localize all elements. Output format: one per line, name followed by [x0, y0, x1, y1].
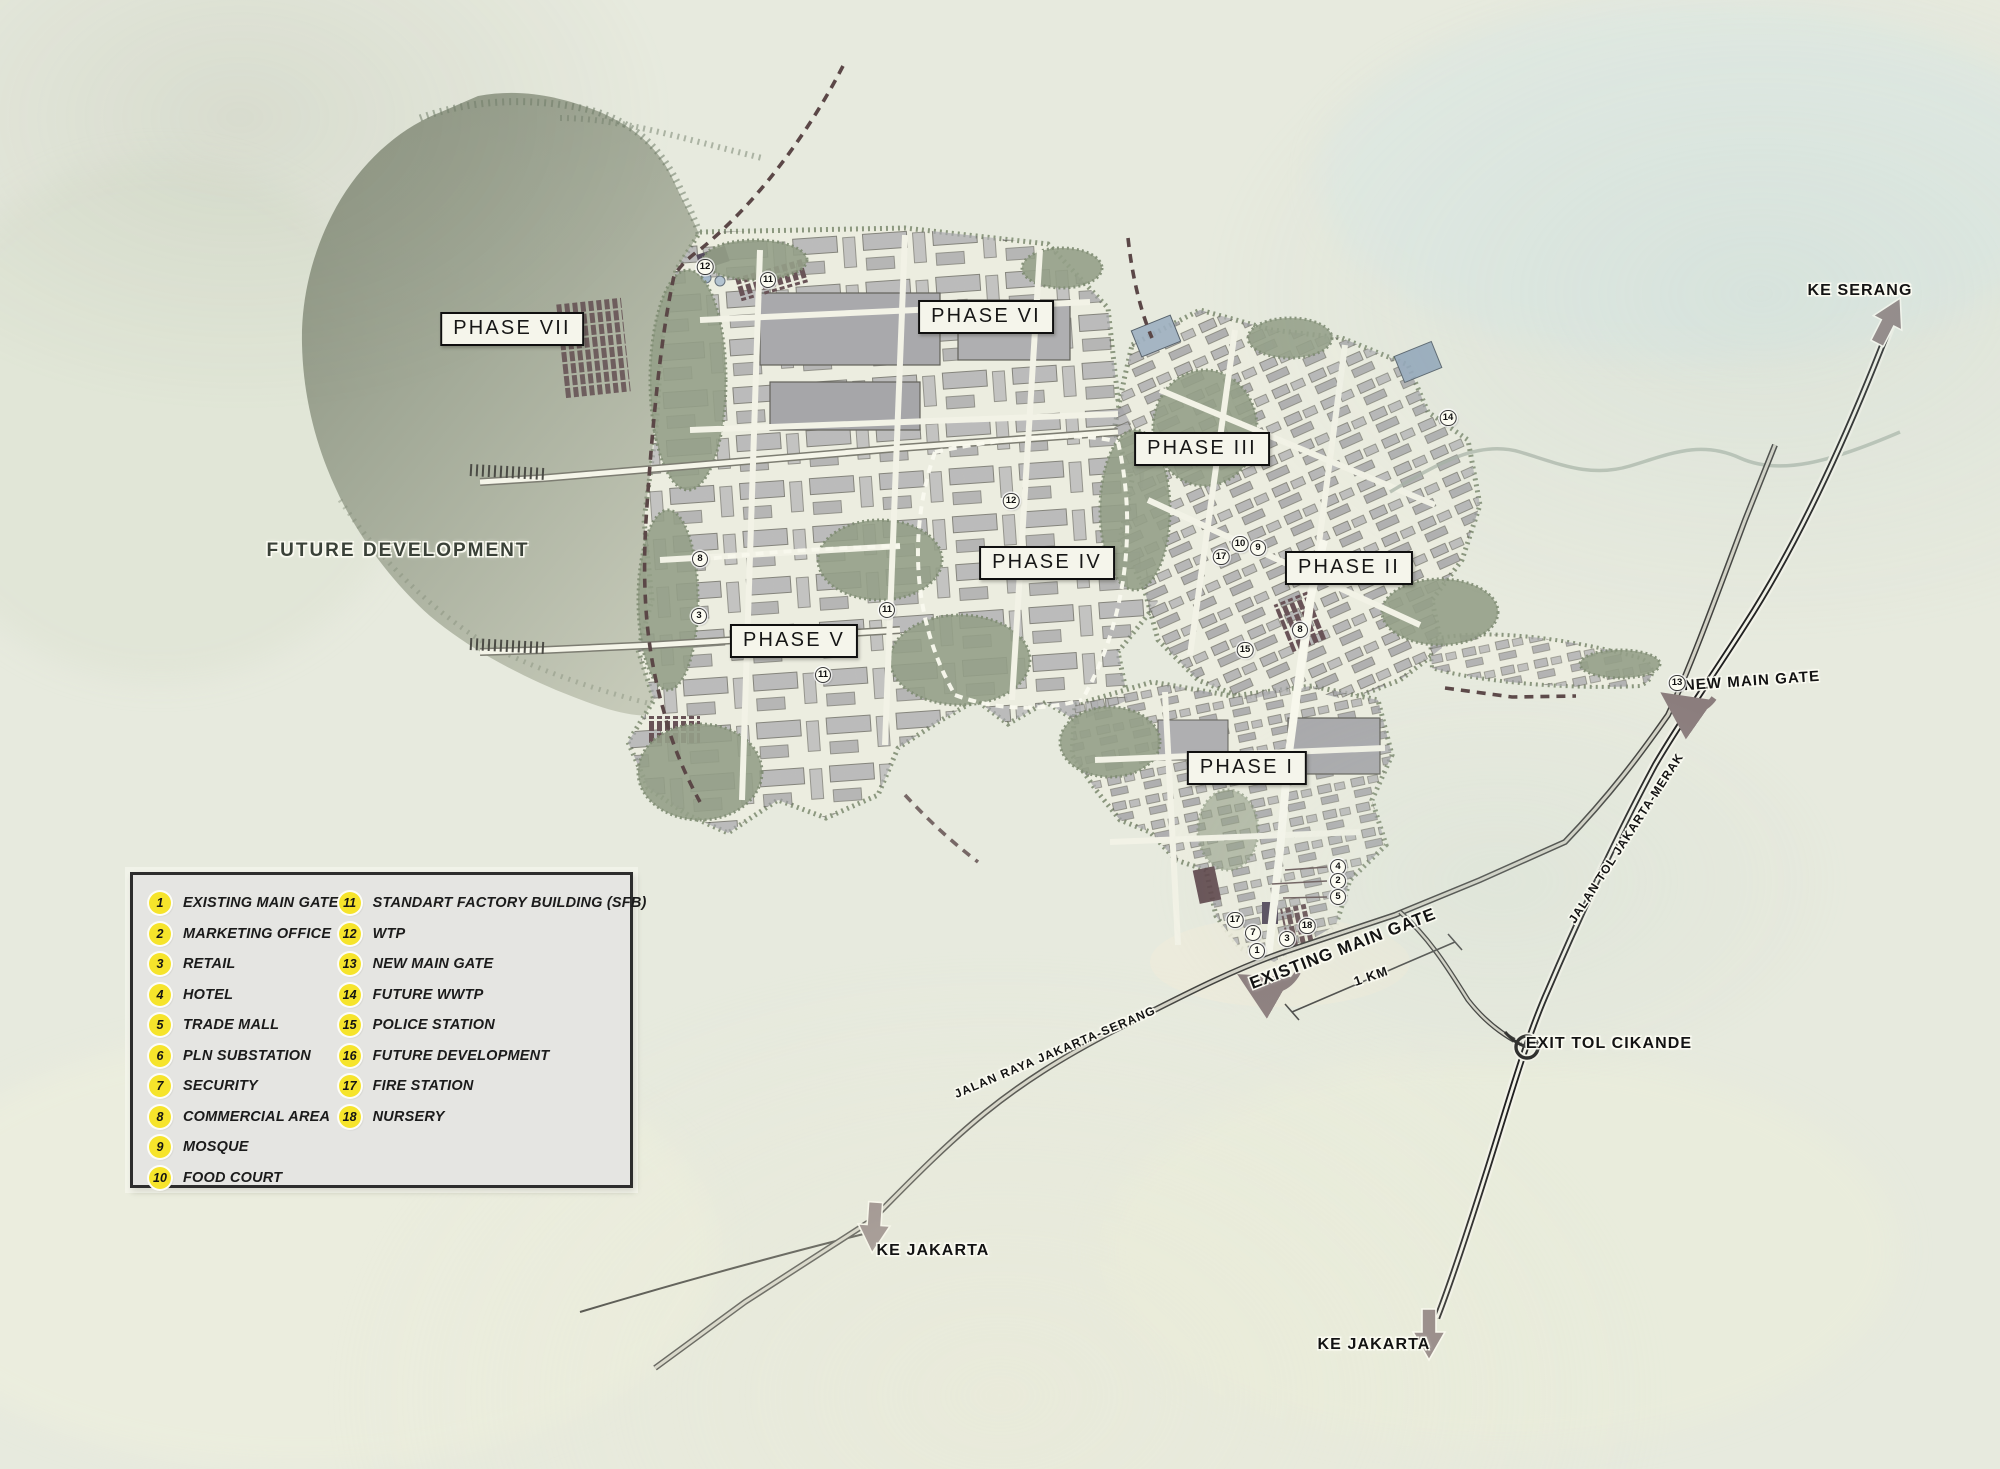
- legend-item-label: STANDART FACTORY BUILDING (SFB): [373, 895, 647, 911]
- phase-label-phase-vii: PHASE VII: [440, 312, 584, 346]
- terrain-washes: [0, 0, 2000, 1469]
- legend-item: 13NEW MAIN GATE: [339, 953, 647, 975]
- legend-item-label: EXISTING MAIN GATE: [183, 895, 339, 911]
- phase-label-phase-iii: PHASE III: [1134, 432, 1270, 466]
- legend-panel: 1EXISTING MAIN GATE2MARKETING OFFICE3RET…: [130, 872, 633, 1188]
- map-marker-17: 17: [1213, 549, 1230, 565]
- legend-item-label: TRADE MALL: [183, 1017, 279, 1033]
- phase-label-phase-vi: PHASE VI: [918, 300, 1054, 334]
- legend-number-badge: 4: [149, 984, 171, 1006]
- map-marker-8: 8: [1292, 622, 1308, 638]
- legend-number-badge: 9: [149, 1136, 171, 1158]
- legend-item-label: PLN SUBSTATION: [183, 1048, 311, 1064]
- legend-number-badge: 6: [149, 1045, 171, 1067]
- map-marker-7: 7: [1245, 925, 1261, 941]
- map-marker-1: 1: [1249, 943, 1265, 959]
- legend-number-badge: 18: [339, 1106, 361, 1128]
- map-marker-8: 8: [692, 551, 708, 567]
- legend-item-label: FUTURE WWTP: [373, 987, 484, 1003]
- map-marker-10: 10: [1232, 536, 1249, 552]
- legend-item: 7SECURITY: [149, 1075, 339, 1097]
- legend-item: 16FUTURE DEVELOPMENT: [339, 1045, 647, 1067]
- map-marker-17: 17: [1227, 912, 1244, 928]
- legend-item-label: SECURITY: [183, 1078, 258, 1094]
- legend-number-badge: 3: [149, 953, 171, 975]
- legend-item: 15POLICE STATION: [339, 1014, 647, 1036]
- legend-item-label: HOTEL: [183, 987, 233, 1003]
- legend-number-badge: 15: [339, 1014, 361, 1036]
- legend-item: 12WTP: [339, 923, 647, 945]
- legend-item: 18NURSERY: [339, 1106, 647, 1128]
- legend-column-1: 1EXISTING MAIN GATE2MARKETING OFFICE3RET…: [149, 892, 339, 1173]
- map-marker-5: 5: [1330, 889, 1346, 905]
- map-marker-15: 15: [1237, 642, 1254, 658]
- legend-item: 4HOTEL: [149, 984, 339, 1006]
- legend-number-badge: 1: [149, 892, 171, 914]
- legend-item-label: WTP: [373, 926, 406, 942]
- legend-item: 2MARKETING OFFICE: [149, 923, 339, 945]
- phase-label-phase-v: PHASE V: [730, 624, 858, 658]
- legend-number-badge: 5: [149, 1014, 171, 1036]
- phase-label-phase-iv: PHASE IV: [979, 546, 1115, 580]
- legend-item-label: COMMERCIAL AREA: [183, 1109, 330, 1125]
- map-canvas: [0, 0, 2000, 1469]
- legend-item: 6PLN SUBSTATION: [149, 1045, 339, 1067]
- map-marker-18: 18: [1299, 918, 1316, 934]
- legend-item-label: FIRE STATION: [373, 1078, 474, 1094]
- legend-item-label: NURSERY: [373, 1109, 445, 1125]
- legend-number-badge: 13: [339, 953, 361, 975]
- legend-column-2: 11STANDART FACTORY BUILDING (SFB)12WTP13…: [339, 892, 647, 1173]
- map-marker-11: 11: [879, 602, 895, 618]
- legend-number-badge: 10: [149, 1167, 171, 1189]
- map-label-ke-serang: KE SERANG: [1807, 282, 1912, 300]
- map-marker-11: 11: [815, 667, 831, 683]
- legend-number-badge: 17: [339, 1075, 361, 1097]
- industrial-estate-masterplan: 1EXISTING MAIN GATE2MARKETING OFFICE3RET…: [0, 0, 2000, 1469]
- map-marker-9: 9: [1250, 540, 1266, 556]
- map-marker-3: 3: [691, 608, 707, 624]
- legend-item-label: MARKETING OFFICE: [183, 926, 331, 942]
- legend-number-badge: 8: [149, 1106, 171, 1128]
- legend-item-label: RETAIL: [183, 956, 235, 972]
- legend-item-label: POLICE STATION: [373, 1017, 495, 1033]
- legend-item: 1EXISTING MAIN GATE: [149, 892, 339, 914]
- map-marker-12: 12: [1003, 493, 1020, 509]
- legend-number-badge: 7: [149, 1075, 171, 1097]
- phase-label-phase-i: PHASE I: [1187, 751, 1307, 785]
- map-label-future-development: FUTURE DEVELOPMENT: [267, 540, 530, 562]
- legend-item: 8COMMERCIAL AREA: [149, 1106, 339, 1128]
- map-marker-11: 11: [760, 272, 776, 288]
- map-label-ke-jakarta-southwest: KE JAKARTA: [877, 1242, 990, 1260]
- map-marker-12: 12: [697, 259, 714, 275]
- legend-item-label: FUTURE DEVELOPMENT: [373, 1048, 550, 1064]
- map-marker-14: 14: [1440, 410, 1457, 426]
- legend-item: 10FOOD COURT: [149, 1167, 339, 1189]
- legend-item: 9MOSQUE: [149, 1136, 339, 1158]
- legend-item-label: MOSQUE: [183, 1139, 249, 1155]
- map-marker-3: 3: [1279, 931, 1295, 947]
- phase-label-phase-ii: PHASE II: [1285, 551, 1413, 585]
- legend-item: 5TRADE MALL: [149, 1014, 339, 1036]
- legend-item: 17FIRE STATION: [339, 1075, 647, 1097]
- legend-number-badge: 2: [149, 923, 171, 945]
- legend-item-label: FOOD COURT: [183, 1170, 282, 1186]
- legend-item-label: NEW MAIN GATE: [373, 956, 494, 972]
- legend-item: 11STANDART FACTORY BUILDING (SFB): [339, 892, 647, 914]
- map-marker-13: 13: [1669, 675, 1686, 691]
- map-label-ke-jakarta-southeast: KE JAKARTA: [1318, 1336, 1431, 1354]
- legend-item: 14FUTURE WWTP: [339, 984, 647, 1006]
- map-label-exit-tol-cikande: EXIT TOL CIKANDE: [1526, 1035, 1692, 1053]
- map-marker-2: 2: [1330, 873, 1346, 889]
- legend-number-badge: 11: [339, 892, 361, 914]
- legend-number-badge: 14: [339, 984, 361, 1006]
- legend-item: 3RETAIL: [149, 953, 339, 975]
- legend-number-badge: 16: [339, 1045, 361, 1067]
- legend-number-badge: 12: [339, 923, 361, 945]
